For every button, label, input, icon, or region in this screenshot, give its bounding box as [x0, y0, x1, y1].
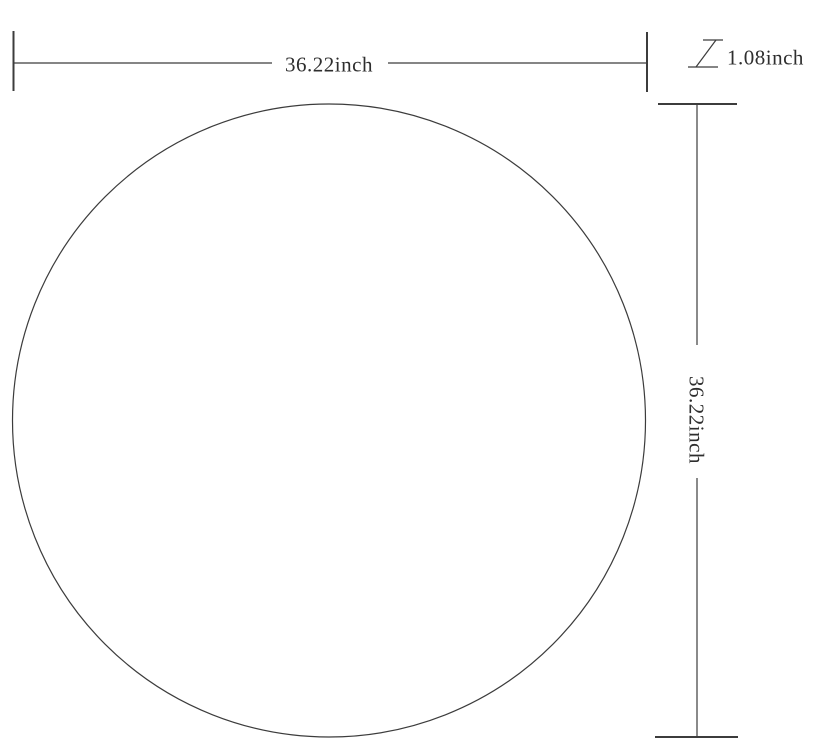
width-dimension-label: 36.22inch: [285, 55, 373, 76]
thickness-break-icon: [688, 40, 723, 67]
circle-outline: [13, 104, 646, 737]
thickness-dimension-label: 1.08inch: [727, 48, 804, 69]
thickness-icon-diagonal-line: [696, 40, 716, 67]
product-dimension-diagram: 36.22inch 1.08inch 36.22inch: [0, 0, 820, 754]
height-dimension-label: 36.22inch: [686, 376, 707, 464]
